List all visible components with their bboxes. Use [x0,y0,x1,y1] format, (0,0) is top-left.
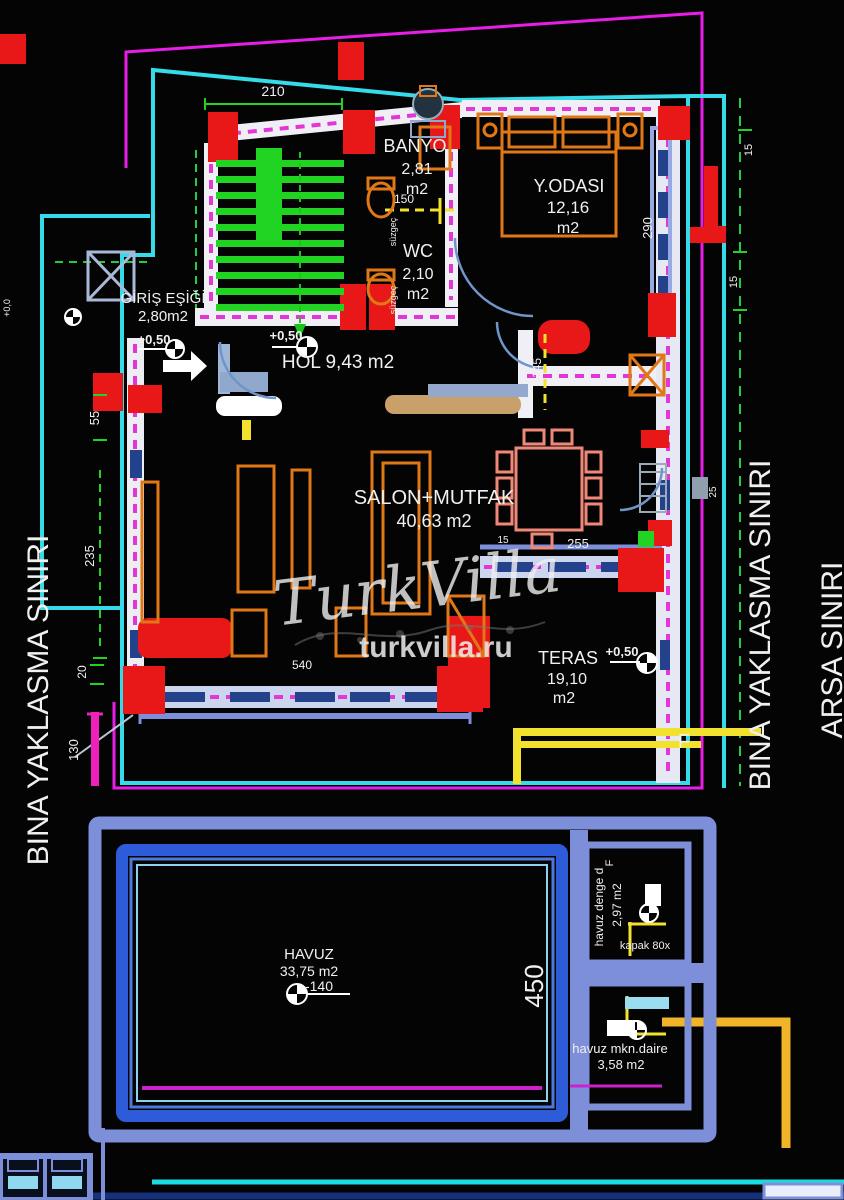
drain-label-a: süzgeç [388,217,398,246]
dim-left-235: 235 [82,545,97,567]
room-unit-terrace: m2 [553,690,575,707]
room-unit-wc: m2 [407,286,429,303]
elevation-datum: +0,0 [2,299,12,317]
tank-mark-f: F [604,859,616,866]
room-label-hall: HOL 9,43 m2 [282,352,394,373]
room-area-balance-tank: 2,97 m2 [610,883,624,927]
bottom-left-structure [0,1156,90,1200]
room-label-machine: havuz mkn.daire [572,1041,667,1056]
right-boundary-label: BINA YAKLASMA SINIRI [744,460,777,791]
room-label-entry: GİRİŞ EŞİĞİ [120,289,205,307]
elevation-entry-b: +0,50 [270,328,303,343]
dim-terrace-540: 540 [292,658,312,672]
drain-label-b: süzgeç [388,285,398,314]
ac-unit [692,477,708,499]
room-area-bedroom: 12,16 [547,198,590,217]
floor-plan-canvas: BANYO 2,81 m2 WC 2,10 m2 Y.ODASI 12,16 m… [0,0,844,1200]
room-area-wc: 2,10 [402,266,433,283]
room-label-wc: WC [403,241,433,261]
room-area-living: 40,63 m2 [396,511,471,531]
room-area-entry: 2,80m2 [138,308,188,325]
elevation-terrace: +0,50 [606,644,639,659]
room-label-bedroom: Y.ODASI [534,176,605,196]
elevation-entry-a: +0,50 [138,332,171,347]
corner-tag [764,1184,842,1198]
dim-bath-150: 150 [394,192,414,206]
dim-right-15a: 15 [743,144,755,156]
kitchen-counter [385,395,521,414]
room-label-terrace: TERAS [538,648,598,668]
room-label-living: SALON+MUTFAK [354,487,515,509]
room-area-pool: 33,75 m2 [280,963,339,979]
room-area-machine: 3,58 m2 [598,1057,645,1072]
parcel-boundary-label: ARSA SINIRI [816,562,844,739]
dim-bedroom-290: 290 [640,217,655,239]
dim-left-130: 130 [66,739,81,761]
pool-depth: -140 [305,978,333,994]
room-label-pool: HAVUZ [284,946,334,963]
dim-left-20: 20 [75,665,89,679]
hatch-label: kapak 80x [620,940,671,952]
sliding-door-slab [428,384,528,397]
room-area-terrace: 19,10 [547,671,587,688]
room-unit-bedroom: m2 [557,220,579,237]
dim-right-15b: 15 [728,276,740,288]
watermark-url: turkvilla.ru [359,631,512,664]
room-label-balance-tank: havuz denge d [592,868,606,947]
room-label-banyo: BANYO [383,136,446,156]
dim-left-55: 55 [87,411,102,425]
room-area-banyo: 2,81 [401,161,432,178]
dim-living-255: 255 [567,536,589,551]
dim-note-25: 25 [708,486,719,498]
dim-pool-450: 450 [519,964,549,1007]
left-boundary-label: BINA YAKLASMA SINIRI [22,535,55,866]
section-mark-f: F [678,731,690,753]
dim-hall-145: 145 [530,358,544,378]
dim-top-210: 210 [261,83,285,99]
